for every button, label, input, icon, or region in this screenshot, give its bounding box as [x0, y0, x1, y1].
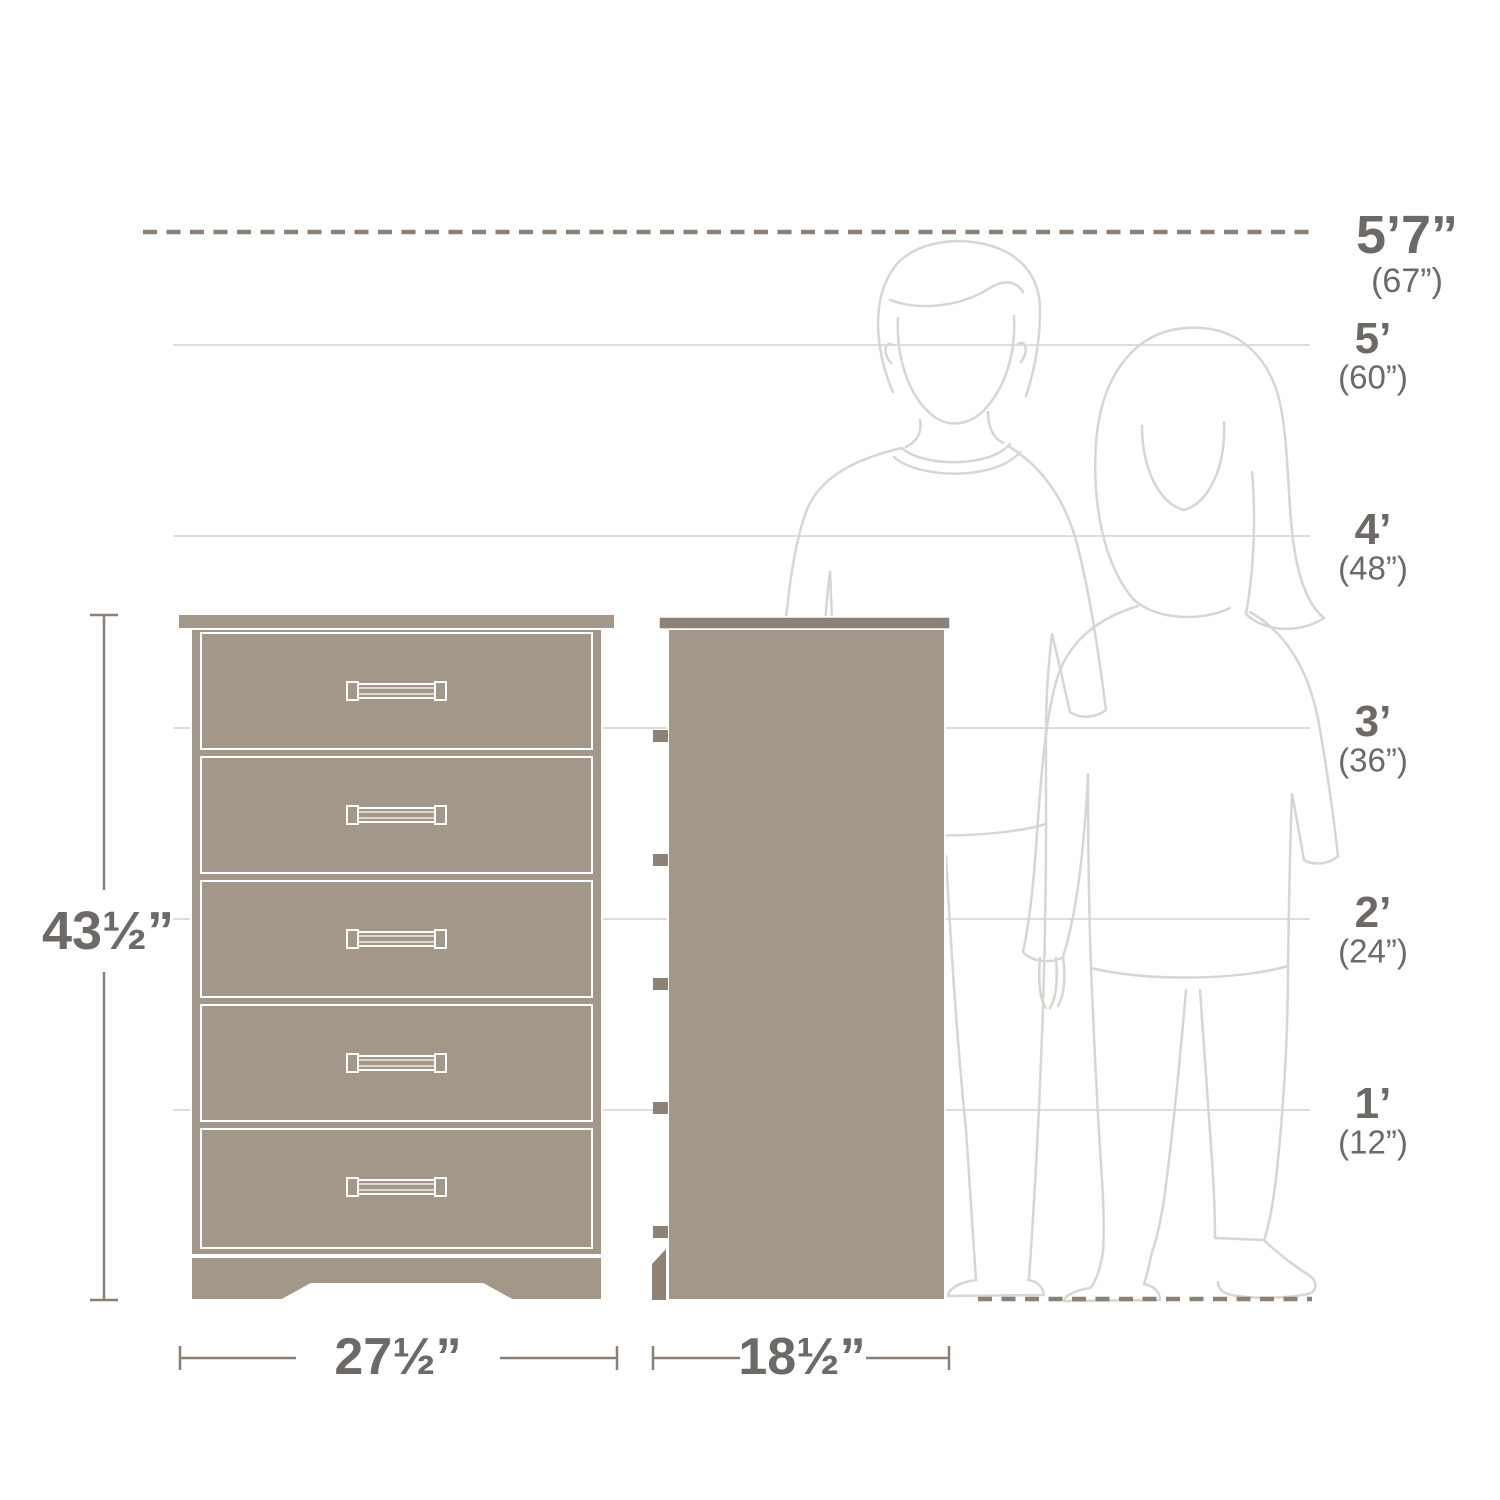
marker-2ft-inches: (24”)	[1338, 935, 1408, 968]
front-dresser-base	[191, 1257, 602, 1300]
woman-right-cuff	[1304, 856, 1338, 863]
side-handle-3	[653, 978, 668, 990]
man-neck	[906, 412, 1003, 447]
side-dresser-top	[659, 617, 950, 629]
depth-dimension-label: 18½”	[738, 1331, 865, 1383]
man-right-cuff	[1070, 710, 1106, 717]
marker-1ft-inches: (12”)	[1338, 1126, 1408, 1159]
marker-5ft-feet: 5’	[1355, 317, 1392, 361]
woman-right-leg-outer	[1264, 966, 1288, 1240]
handle-1	[347, 682, 446, 700]
side-handle-4	[653, 1102, 668, 1114]
handle-4	[347, 1054, 446, 1072]
marker-3ft-inches: (36”)	[1338, 744, 1408, 777]
marker-5ft-inches: (60”)	[1338, 361, 1408, 394]
diagram-graphics	[0, 0, 1500, 1500]
woman-right-shoe	[1215, 1238, 1315, 1298]
woman-hair-outline	[1095, 328, 1324, 629]
woman-top-hem	[1091, 966, 1288, 978]
man-collar	[894, 444, 1020, 474]
side-handle-5	[653, 1226, 668, 1238]
woman-right-leg-inner	[1200, 990, 1215, 1238]
side-dresser-body	[668, 629, 945, 1300]
woman-hair-inner-bottom	[1134, 600, 1230, 617]
height-dimension-label: 43½”	[42, 904, 174, 958]
man-face	[898, 316, 1014, 423]
handle-3	[347, 930, 446, 948]
marker-4ft-inches: (48”)	[1338, 552, 1408, 585]
marker-5ft7-inches: (67”)	[1371, 264, 1443, 298]
front-dresser-top	[178, 614, 615, 629]
dimension-diagram: 5’7” (67”) 5’ (60”) 4’ (48”) 3’ (36”) 2’…	[0, 0, 1500, 1500]
side-handle-1	[653, 730, 668, 742]
woman-left-leg-inner	[1152, 990, 1186, 1252]
man-right-shoe	[948, 1280, 1044, 1296]
woman-right-arm-outer	[1250, 612, 1338, 856]
woman-face	[1142, 422, 1224, 510]
side-dresser	[652, 617, 950, 1300]
woman-right-arm-inner	[1288, 794, 1304, 966]
woman-left-arm-outer	[1023, 606, 1138, 952]
woman-hair-inner-right	[1246, 472, 1254, 614]
front-dresser	[178, 614, 615, 1300]
man-right-arm-outer	[1008, 446, 1106, 710]
woman-torso-left	[1063, 774, 1091, 968]
handle-5	[347, 1178, 446, 1196]
marker-3ft-feet: 3’	[1355, 700, 1392, 744]
marker-4ft-feet: 4’	[1355, 508, 1392, 552]
handle-2	[347, 806, 446, 824]
marker-2ft-feet: 2’	[1355, 891, 1392, 935]
marker-5ft7-feet: 5’7”	[1356, 208, 1458, 262]
width-dimension-label: 27½”	[334, 1331, 461, 1383]
marker-1ft-feet: 1’	[1355, 1082, 1392, 1126]
man-hair-outline	[878, 241, 1040, 396]
woman-left-shoe	[1064, 1252, 1160, 1301]
side-handle-2	[653, 854, 668, 866]
side-foot	[652, 1249, 666, 1300]
man-hair-fringe	[890, 282, 1023, 306]
woman-figure	[1023, 328, 1338, 1301]
